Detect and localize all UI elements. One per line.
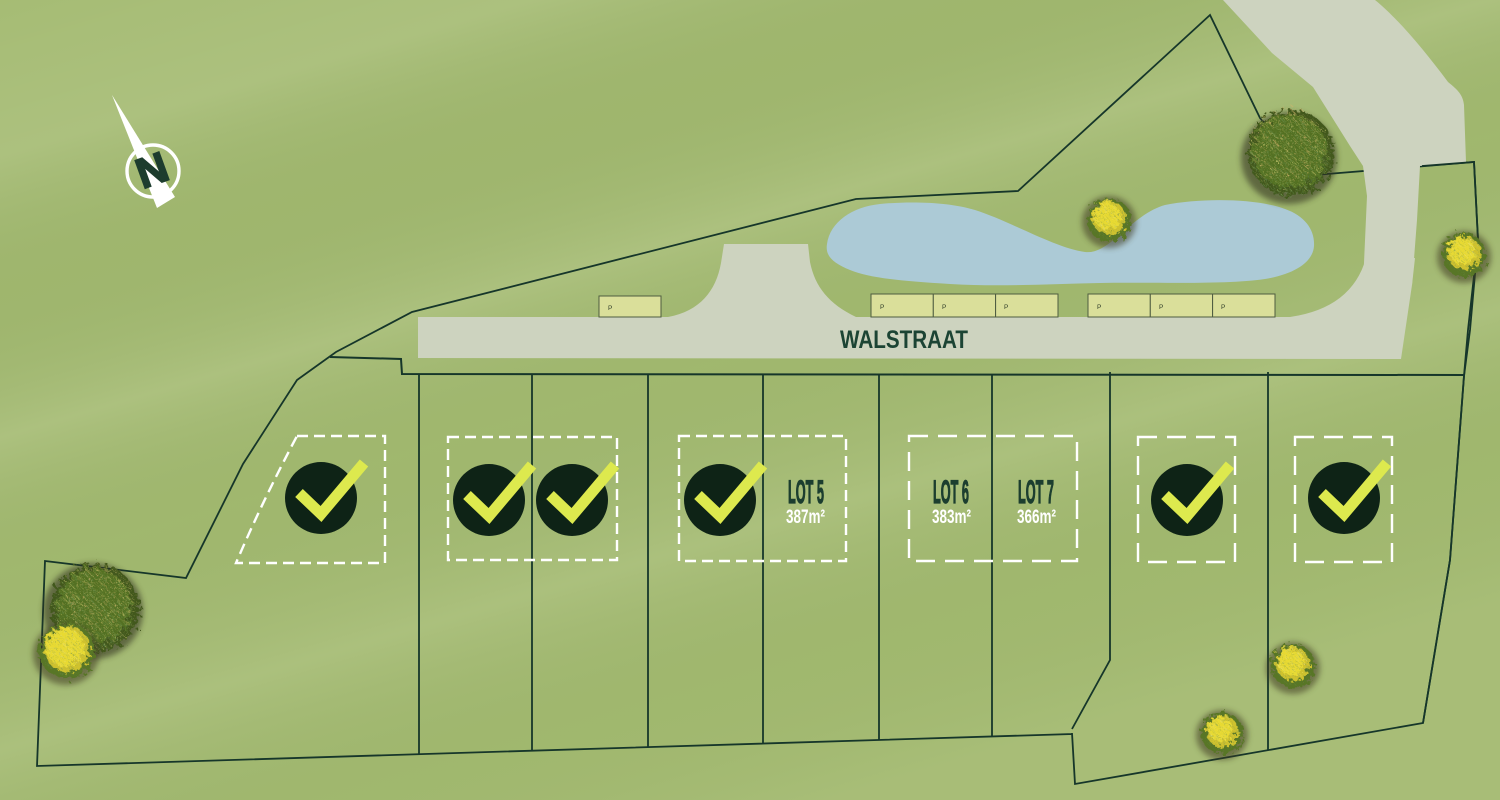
svg-text:P: P: [942, 304, 946, 311]
svg-text:P: P: [608, 305, 612, 312]
svg-text:LOT 5: LOT 5: [788, 474, 824, 510]
svg-text:383m²: 383m²: [932, 507, 971, 528]
svg-text:P: P: [1159, 304, 1163, 311]
svg-text:LOT 7: LOT 7: [1018, 474, 1054, 510]
svg-text:P: P: [880, 304, 884, 311]
svg-text:P: P: [1004, 304, 1008, 311]
svg-text:P: P: [1097, 304, 1101, 311]
svg-text:366m²: 366m²: [1017, 507, 1056, 528]
svg-text:387m²: 387m²: [786, 507, 825, 528]
svg-text:WALSTRAAT: WALSTRAAT: [840, 326, 968, 354]
svg-text:LOT 6: LOT 6: [933, 474, 969, 510]
svg-text:P: P: [1221, 304, 1225, 311]
